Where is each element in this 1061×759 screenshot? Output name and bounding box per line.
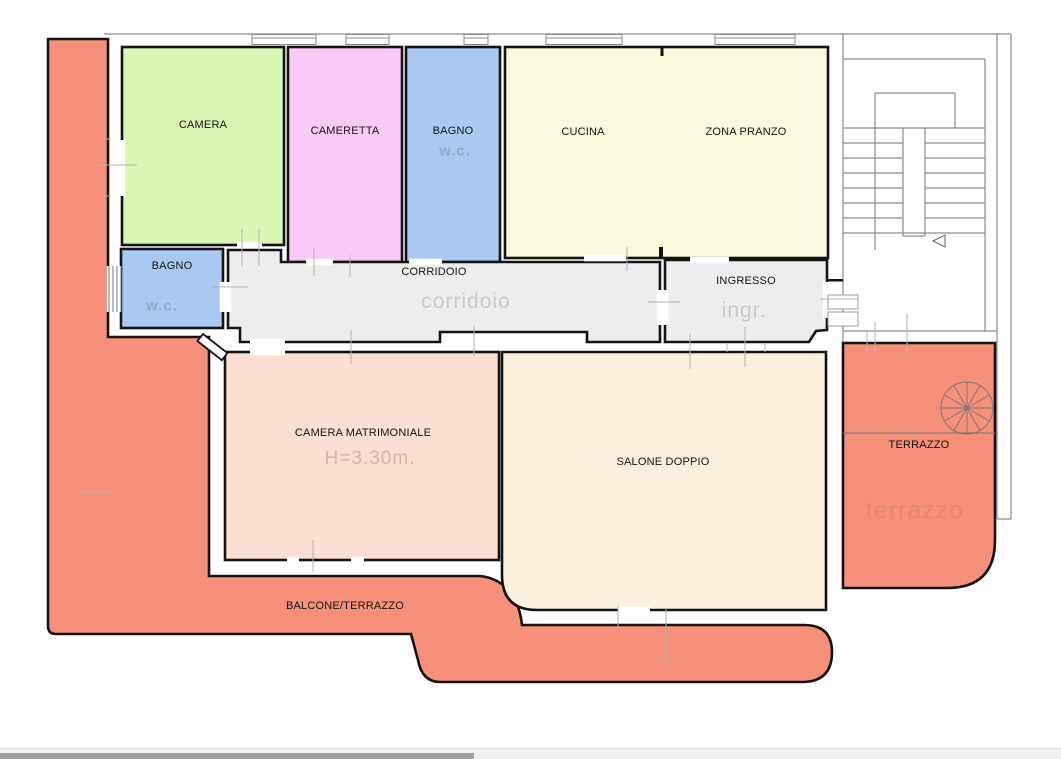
label-zona-pranzo: ZONA PRANZO [705,126,786,138]
sublabel-corridoio: corridoio [421,290,511,314]
floorplan-page: CAMERA CAMERETTA BAGNO w.c. CUCINA ZONA … [0,0,1061,759]
sublabel-height: H=3.30m. [325,448,416,470]
room-camera [122,47,284,245]
sublabel-terrazzo: terrazzo [866,497,964,526]
room-terrazzo [843,343,995,588]
room-salone-doppio [502,352,826,610]
label-camera: CAMERA [179,119,227,131]
label-cameretta: CAMERETTA [311,125,380,137]
spiral-staircase-icon [941,382,993,434]
label-corridoio: CORRIDOIO [401,266,466,278]
stair-direction-arrow-icon [933,235,945,247]
label-bagno-top: BAGNO [433,125,474,137]
sublabel-wc-left: w.c. [146,298,178,315]
label-ingresso: INGRESSO [716,275,776,287]
room-cucina-zona-pranzo [505,47,828,258]
horizontal-scrollbar-track[interactable] [0,748,1061,759]
room-cameretta [288,47,402,262]
sublabel-ingresso: ingr. [722,299,767,323]
label-cucina: CUCINA [561,126,604,138]
floorplan-drawing [0,0,1061,759]
sublabel-wc-top: w.c. [439,143,471,160]
label-bagno-left: BAGNO [152,260,193,272]
label-balcone-terrazzo: BALCONE/TERRAZZO [286,600,404,612]
horizontal-scrollbar-thumb[interactable] [0,753,474,759]
label-camera-matrimoniale: CAMERA MATRIMONIALE [295,427,431,439]
label-salone-doppio: SALONE DOPPIO [616,456,709,468]
label-terrazzo: TERRAZZO [889,439,950,451]
